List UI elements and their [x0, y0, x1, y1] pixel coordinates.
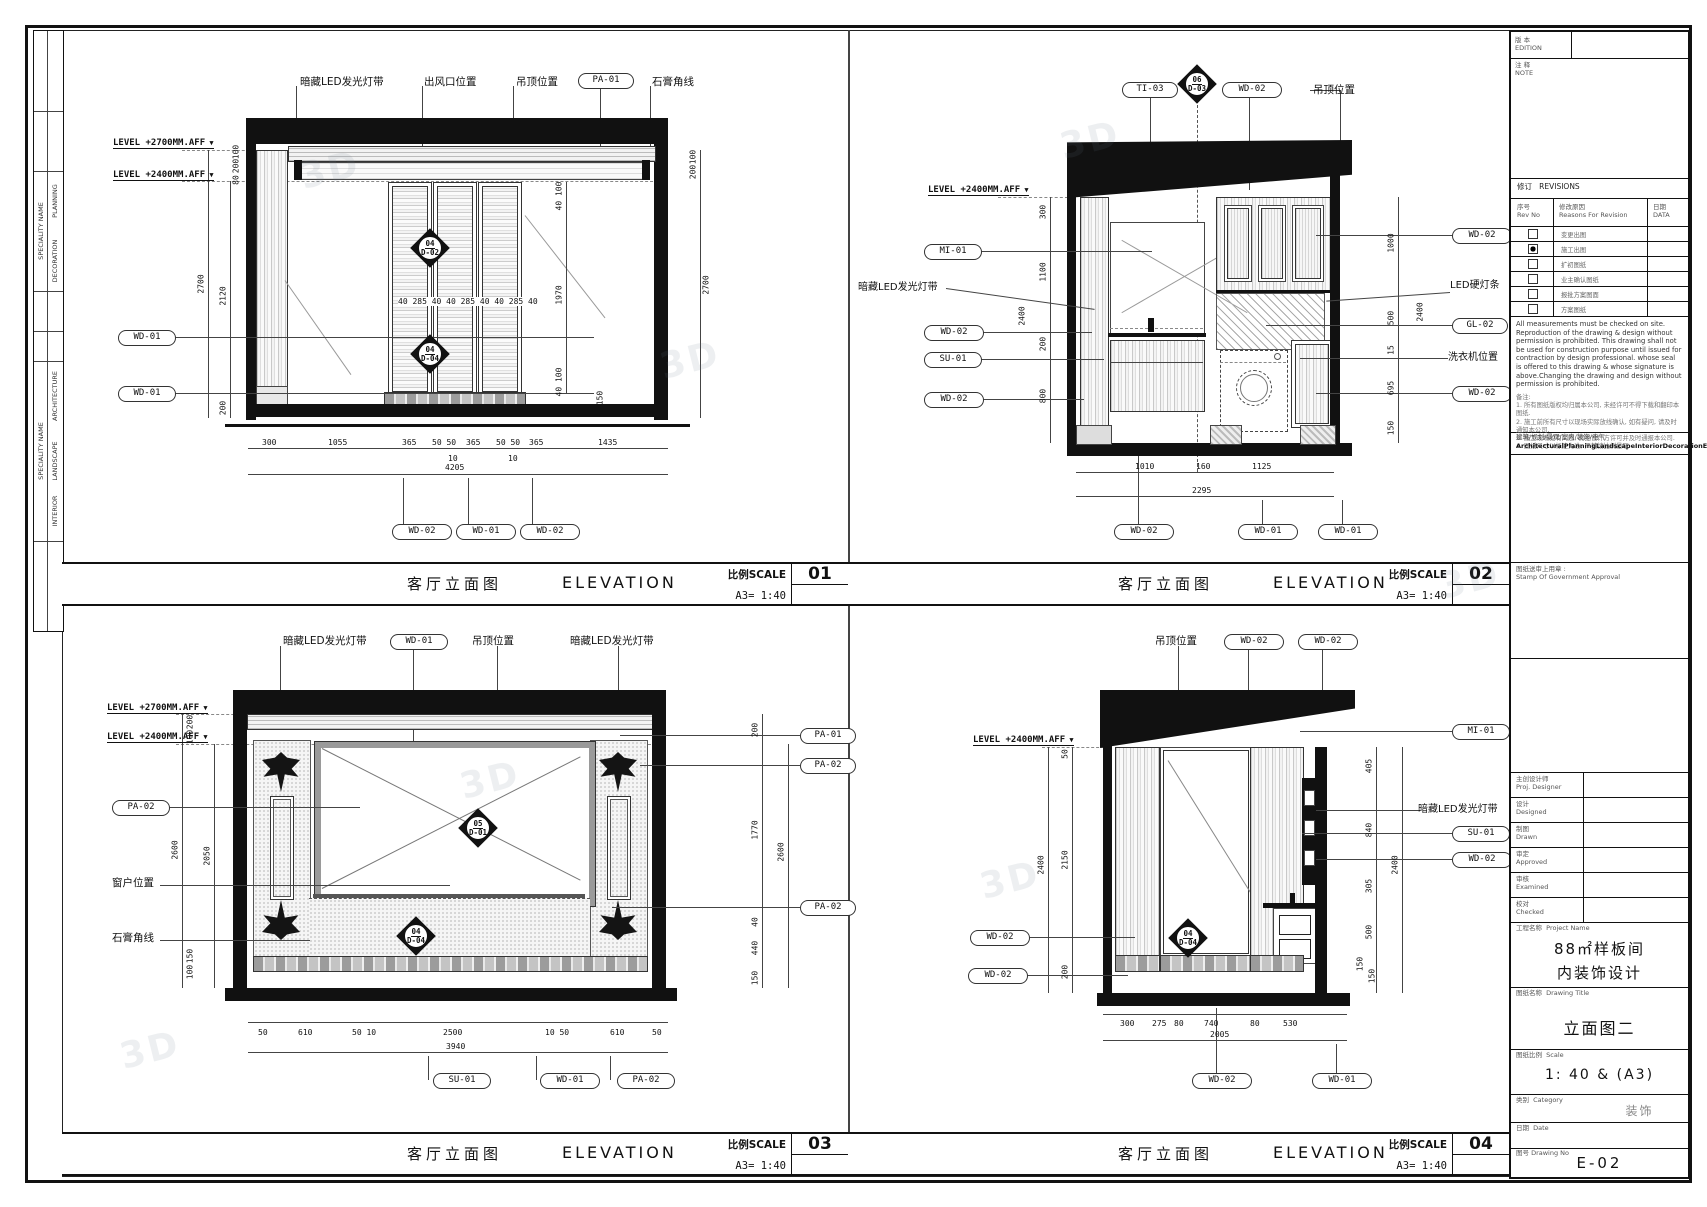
- v04-callout-wd02-l2: WD-02: [968, 968, 1028, 984]
- v02-bubble-wd02-top: WD-02: [1222, 82, 1282, 98]
- v01-callout-b1: WD-02: [392, 524, 452, 540]
- titlebar-02-number: 02: [1453, 564, 1509, 585]
- v03-dim-total: 3940: [446, 1042, 465, 1051]
- v02-callout-b3: WD-01: [1318, 524, 1378, 540]
- left-margin-strip: SPECIALITY NAME PLANNING DECORATION SPEC…: [33, 30, 64, 632]
- v03-callout-plaster: 石膏角线: [112, 930, 154, 945]
- tb-staff-1: 设计Designed: [1516, 801, 1547, 816]
- v03-detail-d04: 04D-04: [400, 920, 432, 952]
- v01-detail-d02: 04D-02: [414, 232, 446, 264]
- strip-landscape: LANDSCAPE: [51, 441, 59, 480]
- tb-scale: 1: 40 & (A3): [1511, 1067, 1688, 1083]
- v03-callout-b2: WD-01: [540, 1073, 600, 1089]
- titlebar-03-scalecap: 比例SCALE: [728, 1137, 786, 1152]
- tb-dwgno: E-02: [1511, 1154, 1688, 1172]
- titlebar-03-scaleval: A3= 1:40: [735, 1160, 786, 1172]
- titlebar-03-number: 03: [792, 1134, 848, 1155]
- tb-rev-no: 序号 Rev No: [1517, 204, 1540, 219]
- titlebar-04-en: ELEVATION: [1273, 1143, 1388, 1162]
- v03-cornice: [247, 714, 654, 730]
- titlebar-02-en: ELEVATION: [1273, 573, 1388, 592]
- tb-scope-en: ArchitecturalPlanningLandscapeInteriorDe…: [1516, 443, 1707, 451]
- titlebar-04-scalecap: 比例SCALE: [1389, 1137, 1447, 1152]
- v02-callout-led: 暗藏LED发光灯带: [858, 278, 938, 293]
- rev-checkbox-0[interactable]: [1528, 229, 1538, 239]
- v04-callout-b1: WD-02: [1192, 1073, 1252, 1089]
- v03-floor: [225, 988, 677, 1001]
- strip-decoration: DECORATION: [51, 240, 59, 283]
- v01-label-cornice: 石膏角线: [652, 74, 694, 89]
- v01-cornice: [288, 146, 656, 162]
- v01-callout-b3: WD-02: [520, 524, 580, 540]
- rev-checkbox-2[interactable]: [1528, 259, 1538, 269]
- v02-mirror: [1110, 222, 1205, 335]
- v02-callout-wd02-l1: WD-02: [924, 325, 984, 341]
- v03-callout-pa02-r2: PA-02: [800, 900, 856, 916]
- v03-callout-pa02: PA-02: [112, 800, 170, 816]
- v02-callout-gl02: GL-02: [1452, 318, 1508, 334]
- tb-rev-reason: 修改原因 Reasons For Revision: [1559, 204, 1628, 219]
- v03-callout-pa02-r1: PA-02: [800, 758, 856, 774]
- tb-staff-0: 主创设计师Proj. Designer: [1516, 776, 1561, 791]
- tb-note-label: 注 释NOTE: [1515, 62, 1533, 77]
- titlebar-01-scalecap: 比例SCALE: [728, 567, 786, 582]
- v02-callout-wd02-r1: WD-02: [1452, 228, 1512, 244]
- tb-staff-5: 校对Checked: [1516, 901, 1544, 916]
- titlebar-01-number: 01: [792, 564, 848, 585]
- tb-staff-4: 审核Examined: [1516, 876, 1548, 891]
- v01-callout-wd01-b: WD-01: [118, 386, 176, 402]
- strip-planning: PLANNING: [51, 184, 59, 218]
- tb-project-name-2: 内装饰设计: [1511, 962, 1688, 983]
- titlebar-01: 客厅立面图 ELEVATION 比例SCALE A3= 1:40 01: [62, 562, 848, 606]
- v02-callout-mi01: MI-01: [924, 244, 982, 260]
- rev-label-3: 业主确认图纸: [1561, 275, 1599, 284]
- v02-dim-total: 2295: [1192, 486, 1211, 495]
- v01-label-led: 暗藏LED发光灯带: [300, 74, 384, 89]
- v03-ceiling-band: [233, 690, 666, 714]
- v02-wall-wood-left: [1080, 197, 1109, 431]
- v03-callout-b1: SU-01: [433, 1073, 491, 1089]
- strip-architecture: ARCHITECTURE: [51, 371, 59, 421]
- v04-detail-d04: 04D-04: [1172, 922, 1204, 954]
- tb-rev-date: 日期 DATA: [1653, 204, 1670, 219]
- tb-staff-3: 审定Approved: [1516, 851, 1547, 866]
- v04-callout-wd02-l1: WD-02: [970, 930, 1030, 946]
- v04-label-ceiling: 吊顶位置: [1155, 633, 1197, 648]
- titlebar-01-cn: 客厅立面图: [407, 573, 502, 594]
- v04-bubble-wd02-t2: WD-02: [1298, 634, 1358, 650]
- strip-interior: INTERIOR: [51, 496, 59, 527]
- rev-label-1: 施工出图: [1561, 245, 1586, 254]
- titlebar-02-scalecap: 比例SCALE: [1389, 567, 1447, 582]
- v04-wall-wood-left: [1115, 747, 1160, 957]
- v02-callout-b2: WD-01: [1238, 524, 1298, 540]
- v01-door-leaf-3: [478, 182, 522, 396]
- titlebar-01-en: ELEVATION: [562, 573, 677, 592]
- titlebar-04-scaleval: A3= 1:40: [1396, 1160, 1447, 1172]
- v03-label-led-l: 暗藏LED发光灯带: [283, 633, 367, 648]
- v04-callout-wd02-r: WD-02: [1452, 852, 1512, 868]
- rev-label-5: 方案图纸: [1561, 305, 1586, 314]
- v04-floor: [1097, 993, 1350, 1006]
- v02-callout-b1: WD-02: [1114, 524, 1174, 540]
- v01-door-dims: 40 285 40 40 285 40 40 285 40: [398, 297, 538, 306]
- tb-dwgtitle-cap: 图纸名称 Drawing Title: [1516, 990, 1589, 998]
- v04-dim-total: 2005: [1210, 1030, 1229, 1039]
- v03-lower-band: [309, 898, 590, 957]
- title-block: 版 本EDITION 注 释NOTE 修订 REVISIONS 序号 Rev N…: [1509, 30, 1690, 1179]
- v03-detail-d01: 05D-01: [462, 812, 494, 844]
- v04-bubble-wd02-t1: WD-02: [1224, 634, 1284, 650]
- v04-callout-led: 暗藏LED发光灯带: [1418, 800, 1498, 815]
- v04-threshold: [1160, 955, 1252, 972]
- rev-checkbox-4[interactable]: [1528, 289, 1538, 299]
- v01-curtain-box: [300, 162, 646, 180]
- drawing-sheet: SPECIALITY NAME PLANNING DECORATION SPEC…: [0, 0, 1707, 1207]
- rev-label-0: 变更出图: [1561, 230, 1586, 239]
- v01-bubble-pa01: PA-01: [578, 73, 634, 89]
- v03-label-led-r: 暗藏LED发光灯带: [570, 633, 654, 648]
- rev-label-4: 报批方案图面: [1561, 290, 1599, 299]
- tb-edition-label: 版 本EDITION: [1515, 37, 1542, 52]
- v02-callout-su01: SU-01: [924, 352, 982, 368]
- v01-level-2400: LEVEL +2400MM.AFF: [113, 170, 214, 181]
- tb-scope-cn: 建筑/规划/景观/室内/装饰/电气: [1516, 434, 1605, 442]
- v04-level-2400: LEVEL +2400MM.AFF: [973, 735, 1074, 746]
- v02-bubble-ti03: TI-03: [1122, 82, 1178, 98]
- v01-callout-wd01-a: WD-01: [118, 330, 176, 346]
- v01-wall-wood-left: [256, 150, 288, 388]
- tb-stamp-label: 图纸送审上用章 :Stamp Of Government Approval: [1516, 566, 1620, 581]
- v02-detail-d03: 06D-03: [1181, 68, 1213, 100]
- v02-callout-wd02-r2: WD-02: [1452, 386, 1512, 402]
- rev-checkbox-3[interactable]: [1528, 274, 1538, 284]
- tb-date-cap: 日期 Date: [1516, 1125, 1549, 1133]
- rev-checkbox-1[interactable]: [1528, 244, 1538, 254]
- v03-bubble-wd01: WD-01: [390, 634, 448, 650]
- v03-label-ceiling: 吊顶位置: [472, 633, 514, 648]
- titlebar-02: 客厅立面图 ELEVATION 比例SCALE A3= 1:40 02: [848, 562, 1509, 606]
- v02-callout-wd02-l2: WD-02: [924, 392, 984, 408]
- v02-callout-washer: 洗衣机位置: [1448, 348, 1498, 363]
- v01-floor: [246, 404, 668, 417]
- v02-callout-ledbar: LED硬灯条: [1450, 276, 1500, 291]
- v01-label-vent: 出风口位置: [424, 74, 477, 89]
- tb-project-cap: 工程名称 Project Name: [1516, 925, 1590, 933]
- v02-vanity: [1110, 340, 1205, 412]
- rev-label-2: 扩初图纸: [1561, 260, 1586, 269]
- titlebar-03: 客厅立面图 ELEVATION 比例SCALE A3= 1:40 03: [62, 1132, 848, 1176]
- rev-checkbox-5[interactable]: [1528, 304, 1538, 314]
- strip-speciality-2: SPECIALITY NAME: [37, 422, 45, 480]
- v03-level-2700: LEVEL +2700MM.AFF: [107, 703, 208, 714]
- tb-project-name-1: 88㎡样板间: [1511, 938, 1688, 959]
- titlebar-01-scaleval: A3= 1:40: [735, 590, 786, 602]
- v03-callout-window: 窗户位置: [112, 875, 154, 890]
- v01-ceiling-band: [246, 118, 668, 144]
- titlebar-03-en: ELEVATION: [562, 1143, 677, 1162]
- v02-level-2400: LEVEL +2400MM.AFF: [928, 185, 1029, 196]
- v01-level-2700: LEVEL +2700MM.AFF: [113, 138, 214, 149]
- v02-tall-cabinet: [1291, 340, 1333, 428]
- v04-callout-su01: SU-01: [1452, 826, 1510, 842]
- v03-callout-b3: PA-02: [617, 1073, 675, 1089]
- v03-skirting: [253, 956, 648, 972]
- v04-callout-mi01: MI-01: [1452, 724, 1510, 740]
- v01-label-ceiling: 吊顶位置: [516, 74, 558, 89]
- tb-scale-cap: 图纸比例 Scale: [1516, 1052, 1564, 1060]
- titlebar-04-cn: 客厅立面图: [1118, 1143, 1213, 1164]
- titlebar-04: 客厅立面图 ELEVATION 比例SCALE A3= 1:40 04: [848, 1132, 1509, 1176]
- tb-revisions-label: 修订 REVISIONS: [1517, 183, 1580, 191]
- tb-staff-2: 制图Drawn: [1516, 826, 1537, 841]
- titlebar-03-cn: 客厅立面图: [407, 1143, 502, 1164]
- v01-callout-b2: WD-01: [456, 524, 516, 540]
- titlebar-02-scaleval: A3= 1:40: [1396, 590, 1447, 602]
- v01-detail-d04: 04D-04: [414, 338, 446, 370]
- tb-dwgtitle: 立面图二: [1511, 1015, 1688, 1039]
- v01-dim-total: 4205: [445, 463, 464, 472]
- tb-disclaimer: All measurements must be checked on site…: [1516, 320, 1682, 389]
- tb-category: 装饰: [1551, 1102, 1707, 1119]
- strip-speciality-1: SPECIALITY NAME: [37, 202, 45, 260]
- titlebar-04-number: 04: [1453, 1134, 1509, 1155]
- v03-callout-pa01: PA-01: [800, 728, 856, 744]
- v02-label-ceiling: 吊顶位置: [1313, 82, 1355, 97]
- titlebar-02-cn: 客厅立面图: [1118, 573, 1213, 594]
- v04-callout-b2: WD-01: [1312, 1073, 1372, 1089]
